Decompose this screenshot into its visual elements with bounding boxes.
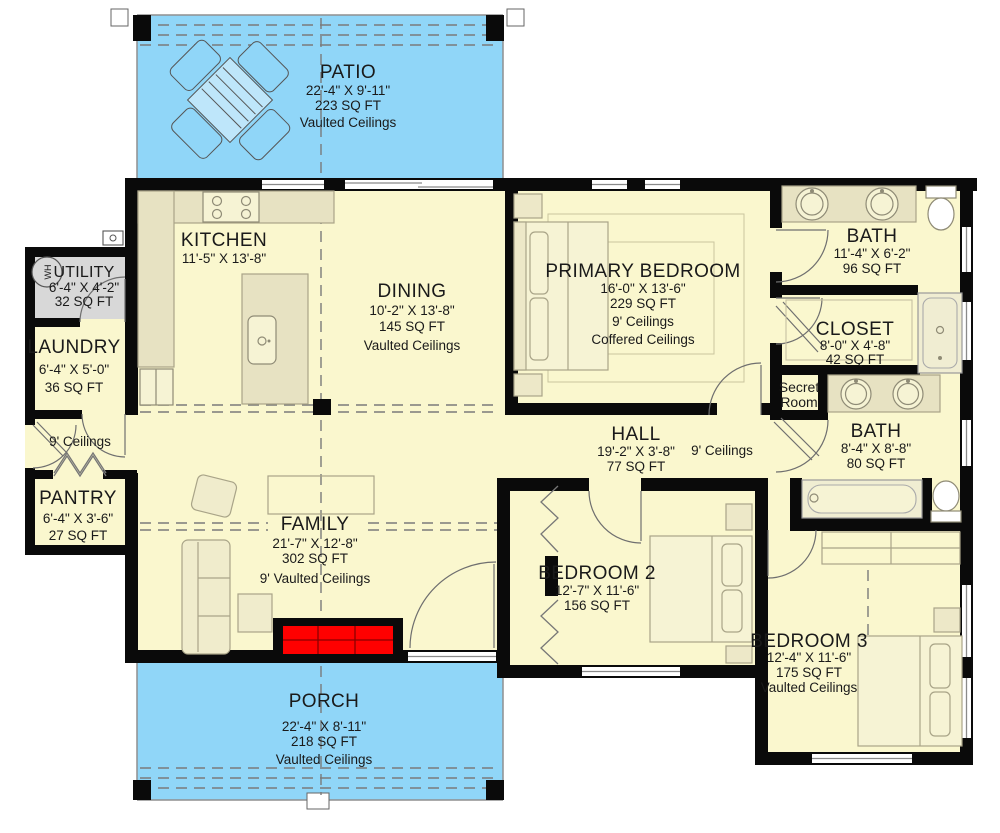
svg-text:9' Vaulted Ceilings: 9' Vaulted Ceilings: [260, 571, 371, 586]
pillow: [530, 298, 548, 360]
svg-text:PATIO: PATIO: [320, 62, 376, 83]
svg-text:Coffered Ceilings: Coffered Ceilings: [591, 332, 695, 347]
svg-text:DINING: DINING: [378, 281, 447, 302]
svg-text:8'-0" X 4'-8": 8'-0" X 4'-8": [820, 338, 890, 353]
pillow: [722, 590, 742, 632]
svg-text:12'-7" X 11'-6": 12'-7" X 11'-6": [555, 583, 639, 598]
svg-text:9' Ceilings: 9' Ceilings: [49, 434, 111, 449]
svg-text:11'-4" X 6'-2": 11'-4" X 6'-2": [834, 246, 911, 261]
svg-text:BATH: BATH: [851, 421, 902, 442]
svg-text:9' Ceilings: 9' Ceilings: [612, 314, 674, 329]
svg-text:6'-4" X 5'-0": 6'-4" X 5'-0": [39, 362, 109, 377]
svg-text:Room: Room: [780, 394, 817, 410]
nightstand: [726, 504, 752, 530]
water-heater-label: WH: [43, 265, 53, 280]
shower: [918, 293, 962, 373]
room-label-porch: PORCH 22'-4" X 8'-11" 218 SQ FT Vaulted …: [276, 691, 373, 767]
svg-text:21'-7" X 12'-8": 21'-7" X 12'-8": [272, 536, 357, 551]
svg-text:PORCH: PORCH: [289, 691, 360, 712]
svg-text:KITCHEN: KITCHEN: [181, 230, 267, 251]
toilet-icon: [926, 186, 956, 198]
room-label-utility: UTILITY 6'-4" X 4'-2" 32 SQ FT: [49, 264, 119, 309]
electrical-panel-icon: [103, 231, 123, 245]
svg-text:11'-5" X 13'-8": 11'-5" X 13'-8": [182, 251, 266, 266]
svg-text:302 SQ FT: 302 SQ FT: [282, 551, 348, 566]
svg-text:CLOSET: CLOSET: [816, 319, 894, 340]
svg-text:32 SQ FT: 32 SQ FT: [55, 294, 114, 309]
sofa: [182, 540, 230, 654]
room-label-closet: CLOSET 8'-0" X 4'-8" 42 SQ FT: [816, 319, 894, 367]
room-label-dining: DINING 10'-2" X 13'-8" 145 SQ FT Vaulted…: [364, 281, 461, 353]
room-label-bedroom3: BEDROOM 3 12'-4" X 11'-6" 175 SQ FT Vaul…: [750, 631, 868, 695]
svg-text:223 SQ FT: 223 SQ FT: [315, 98, 381, 113]
porch-column: [307, 793, 329, 809]
svg-text:Vaulted Ceilings: Vaulted Ceilings: [300, 115, 397, 130]
nightstand: [934, 608, 960, 632]
svg-text:42 SQ FT: 42 SQ FT: [826, 352, 885, 367]
svg-text:6'-4" X 3'-6": 6'-4" X 3'-6": [43, 511, 113, 526]
svg-text:19'-2" X 3'-8": 19'-2" X 3'-8": [597, 444, 675, 459]
svg-text:80 SQ FT: 80 SQ FT: [847, 456, 906, 471]
svg-text:FAMILY: FAMILY: [281, 514, 350, 535]
nightstand: [726, 646, 752, 663]
svg-text:229 SQ FT: 229 SQ FT: [610, 296, 676, 311]
bed: [514, 222, 608, 370]
svg-text:8'-4" X 8'-8": 8'-4" X 8'-8": [841, 441, 911, 456]
svg-text:PRIMARY BEDROOM: PRIMARY BEDROOM: [545, 261, 740, 282]
svg-text:77 SQ FT: 77 SQ FT: [607, 459, 666, 474]
svg-text:PANTRY: PANTRY: [39, 488, 117, 509]
svg-text:12'-4" X 11'-6": 12'-4" X 11'-6": [767, 650, 851, 665]
primary-bedroom-furniture: [514, 194, 608, 396]
range-icon: [203, 192, 259, 222]
svg-text:96 SQ FT: 96 SQ FT: [843, 261, 902, 276]
svg-text:HALL: HALL: [611, 424, 660, 445]
svg-text:UTILITY: UTILITY: [54, 264, 115, 281]
nightstand: [514, 194, 542, 218]
ottoman: [238, 594, 272, 632]
svg-text:156 SQ FT: 156 SQ FT: [564, 598, 630, 613]
svg-text:36 SQ FT: 36 SQ FT: [45, 380, 104, 395]
room-label-pantry: PANTRY 6'-4" X 3'-6" 27 SQ FT: [39, 488, 117, 543]
patio-column: [111, 9, 128, 26]
room-label-kitchen: KITCHEN 11'-5" X 13'-8": [181, 230, 267, 266]
svg-text:9' Ceilings: 9' Ceilings: [691, 443, 753, 458]
svg-text:145 SQ FT: 145 SQ FT: [379, 319, 445, 334]
svg-text:27 SQ FT: 27 SQ FT: [49, 528, 108, 543]
room-label-secret-room: Secret Room: [779, 379, 820, 410]
patio-post: [486, 15, 504, 41]
pillow: [930, 692, 950, 736]
patio-column: [507, 9, 524, 26]
svg-text:175 SQ FT: 175 SQ FT: [776, 665, 842, 680]
nightstand: [514, 374, 542, 396]
porch-post: [133, 780, 151, 800]
svg-text:16'-0" X 13'-6": 16'-0" X 13'-6": [600, 281, 685, 296]
svg-text:Vaulted Ceilings: Vaulted Ceilings: [276, 752, 373, 767]
svg-text:22'-4" X 9'-11": 22'-4" X 9'-11": [306, 83, 390, 98]
room-label-bath2: BATH 8'-4" X 8'-8" 80 SQ FT: [841, 421, 911, 471]
svg-text:Secret: Secret: [779, 379, 820, 395]
porch-post: [486, 780, 504, 800]
fireplace: [273, 618, 403, 662]
patio-post: [133, 15, 151, 41]
room-label-mudroom: 9' Ceilings: [49, 434, 111, 449]
kitchen-sink-icon: [248, 316, 276, 364]
svg-text:6'-4" X 4'-2": 6'-4" X 4'-2": [49, 280, 119, 295]
pillow: [930, 644, 950, 688]
svg-text:Vaulted Ceilings: Vaulted Ceilings: [364, 338, 461, 353]
floor-plan-drawing: PATIO 22'-4" X 9'-11" 223 SQ FT Vaulted …: [0, 0, 1000, 833]
svg-text:10'-2" X 13'-8": 10'-2" X 13'-8": [369, 303, 454, 318]
pillow: [722, 544, 742, 586]
svg-text:BATH: BATH: [847, 226, 898, 247]
floor-plan: PATIO 22'-4" X 9'-11" 223 SQ FT Vaulted …: [0, 0, 1000, 833]
svg-text:22'-4" X 8'-11": 22'-4" X 8'-11": [282, 719, 366, 734]
svg-text:218 SQ FT: 218 SQ FT: [291, 734, 357, 749]
svg-text:BEDROOM 2: BEDROOM 2: [538, 563, 656, 584]
svg-text:Vaulted Ceilings: Vaulted Ceilings: [761, 680, 858, 695]
svg-text:BEDROOM 3: BEDROOM 3: [750, 631, 868, 652]
toilet-icon: [933, 481, 959, 511]
svg-text:LAUNDRY: LAUNDRY: [27, 337, 120, 358]
